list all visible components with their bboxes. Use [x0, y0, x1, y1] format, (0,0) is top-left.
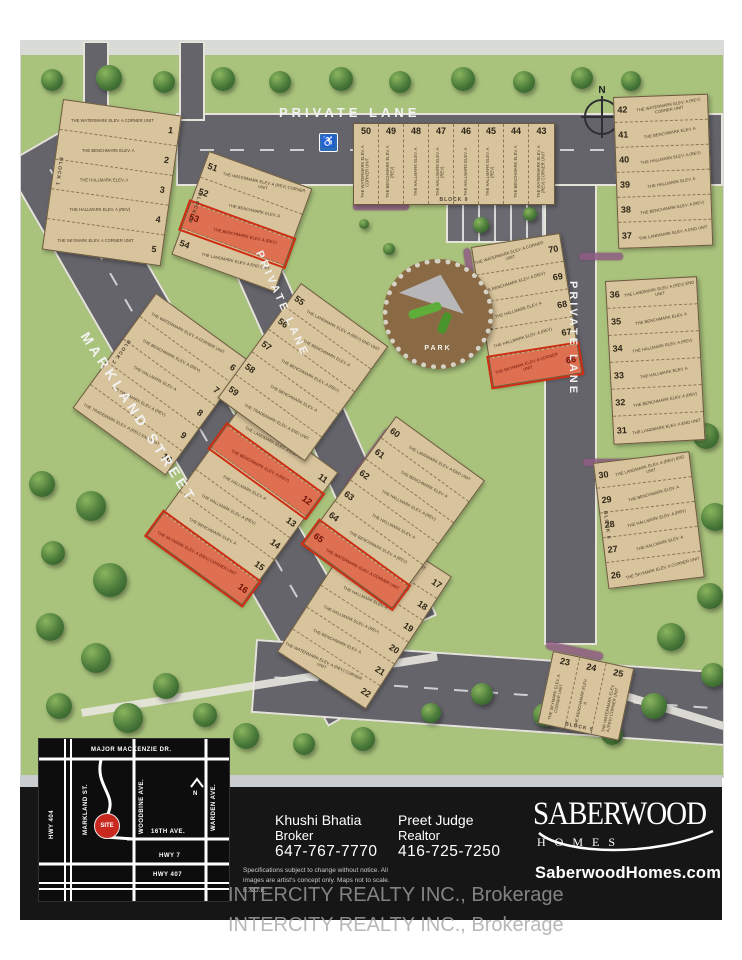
tree [523, 207, 537, 221]
inset-road-16th-ave: 16TH AVE. [151, 829, 185, 835]
lot-model-name: THE SKYMARK ELEV. A CORNER UNIT [492, 352, 564, 382]
playground-slide [407, 301, 442, 320]
lot-number: 11 [314, 470, 333, 487]
lot-number: 60 [386, 423, 405, 440]
tree [513, 71, 535, 93]
location-inset-map: HWY 404 MARKLAND ST. WOODBINE AVE. WARDE… [38, 738, 230, 902]
tree [233, 723, 259, 749]
lot-number: 27 [604, 543, 621, 555]
private-lane-right-label: PRIVATE LANE [567, 281, 579, 396]
lot-model-name: THE BENCHMARK ELEV. A [574, 677, 594, 730]
lot-number: 29 [598, 494, 615, 506]
agent-2-name: Preet Judge [398, 812, 501, 828]
tree [153, 673, 179, 699]
lot-model-name: THE BENCHMARK ELEV. A [514, 142, 519, 202]
compass-north-label: N [598, 85, 605, 96]
lot-number: 5 [145, 243, 162, 255]
tree [41, 69, 63, 91]
watermark-line-1: INTERCITY REALTY INC., Brokerage [228, 884, 564, 907]
agent-2-title: Realtor [398, 828, 501, 843]
inset-road-markland: MARKLAND ST. [83, 784, 89, 835]
lot-model-name: THE HALLMARK ELEV. A [627, 364, 701, 383]
lot-number: 64 [325, 508, 344, 525]
brand-logo: SABERWOOD HOMES SaberwoodHomes.com [533, 798, 719, 883]
lot-model-name: THE WATERMARK ELEV. A (REV) CORNER UNIT [630, 97, 707, 119]
lot-number: 59 [224, 382, 243, 399]
lot-number: 58 [241, 359, 260, 376]
lot-number: 13 [282, 513, 301, 530]
lot-number: 17 [428, 575, 447, 592]
watermark-line-2: INTERCITY REALTY INC., Brokerage [228, 914, 564, 937]
lot-number: 23 [550, 652, 579, 673]
site-plan-map: ♿ N THE WATERMARK ELEV. A CORNER UNIT1TH… [20, 40, 724, 778]
lot-model-name: THE BENCHMARK ELEV. A [631, 124, 708, 142]
tree [451, 67, 475, 91]
inset-road-major-mackenzie: MAJOR MACKENZIE DR. [91, 747, 172, 753]
lot-number: 55 [290, 291, 309, 308]
lot-model-name: THE WATERMARK ELEV. A CORNER UNIT [361, 142, 370, 202]
lot-number: 69 [549, 270, 566, 282]
lot-model-name: THE HALLMARK ELEV. A (REV) [436, 142, 445, 202]
building-block-b8: 42THE WATERMARK ELEV. A (REV) CORNER UNI… [613, 94, 713, 249]
tree [46, 693, 72, 719]
handicap-parking-icon: ♿ [319, 133, 338, 152]
lot-40: 40THE HALLMARK ELEV. A (REV) [616, 145, 710, 173]
lot-39: 39THE HALLMARK ELEV. A [617, 170, 711, 198]
tree [471, 683, 493, 705]
road-stub-center [179, 41, 205, 121]
building-block-b6: 30THE LANDMARK ELEV. A (REV) END UNIT29T… [593, 451, 705, 589]
lot-45: 45THE HALLMARK ELEV. A (REV) [479, 124, 504, 204]
lot-number: 4 [150, 213, 167, 225]
brand-website: SaberwoodHomes.com [535, 864, 719, 883]
road-private-lane-right [544, 153, 597, 645]
tree [153, 71, 175, 93]
tree [621, 71, 641, 91]
lot-number: 15 [250, 557, 269, 574]
building-block-b7: 36THE LANDMARK ELEV. A (REV) END UNIT35T… [605, 276, 705, 445]
flower-hedge [579, 253, 623, 260]
lot-42: 42THE WATERMARK ELEV. A (REV) CORNER UNI… [614, 95, 708, 123]
lot-number: 36 [606, 289, 623, 300]
lot-number: 2 [158, 153, 175, 165]
lot-model-name: THE BENCHMARK ELEV. A (REV) [386, 142, 395, 202]
tree [93, 563, 127, 597]
lot-model-name: THE SKYMARK ELEV. A CORNER UNIT [624, 556, 702, 581]
agent-1-name: Khushi Bhatia [275, 812, 378, 828]
lot-number: 26 [607, 569, 624, 581]
tree [571, 67, 593, 89]
lot-model-name: THE LANDMARK ELEV. A END UNIT [630, 418, 704, 437]
lot-number: 54 [176, 236, 194, 251]
lot-model-name: THE BENCHMARK ELEV. A [57, 149, 159, 154]
lot-number: 14 [266, 535, 285, 552]
lot-model-name: THE WATERMARK ELEV. A CORNER UNIT [61, 119, 163, 124]
lot-number: 21 [371, 662, 390, 679]
building-block-b9: 50THE WATERMARK ELEV. A CORNER UNIT49THE… [353, 123, 555, 205]
agent-1: Khushi Bhatia Broker 647-767-7770 [275, 812, 378, 861]
lot-number: 42 [614, 104, 630, 115]
lot-48: 48THE HALLMARK ELEV. A [404, 124, 429, 204]
lot-number: 48 [404, 124, 428, 140]
lot-model-name: THE WATERMARK ELEV. A (REV) CORNER UNIT [537, 142, 546, 202]
lot-model-name: THE BENCHMARK ELEV. A (REV) [479, 270, 549, 295]
lot-number: 61 [371, 444, 390, 461]
lot-model-name: THE HALLMARK ELEV. A [414, 142, 419, 202]
lot-model-name: THE HALLMARK ELEV. A (REV) [626, 337, 700, 356]
inset-road-hwy407: HWY 407 [153, 872, 182, 878]
lot-number: 39 [617, 179, 633, 190]
agent-2-phone: 416-725-7250 [398, 843, 501, 861]
tree [657, 623, 685, 651]
tree [193, 703, 217, 727]
lot-47: 47THE HALLMARK ELEV. A (REV) [429, 124, 454, 204]
top-gray-strip [21, 41, 723, 55]
lot-number: 25 [603, 663, 633, 684]
lot-43: 43THE WATERMARK ELEV. A (REV) CORNER UNI… [529, 124, 554, 204]
lot-model-name: THE HALLMARK ELEV. A (REV) [49, 208, 151, 213]
tree [351, 727, 375, 751]
tree [113, 703, 143, 733]
lot-number: 70 [545, 242, 562, 254]
lot-model-name: THE HALLMARK ELEV. A [633, 174, 710, 192]
park: PARK [383, 259, 493, 369]
tree [641, 693, 667, 719]
lot-number: 57 [257, 337, 276, 354]
agent-2: Preet Judge Realtor 416-725-7250 [398, 812, 501, 861]
inset-road-hwy7: HWY 7 [159, 853, 180, 859]
lot-model-name: THE SKYMARK ELEV. A CORNER UNIT [547, 672, 567, 725]
tree [269, 71, 291, 93]
lot-model-name: THE HALLMARK ELEV. A [464, 142, 469, 202]
tree [701, 663, 724, 687]
tree [81, 643, 111, 673]
tree [359, 219, 369, 229]
lot-number: 12 [298, 491, 317, 508]
lot-model-name: THE HALLMARK ELEV. A (REV) [486, 142, 495, 202]
lot-number: 65 [309, 529, 328, 546]
lot-model-name: THE LANDMARK ELEV. A END UNIT [635, 225, 712, 243]
lot-number: 49 [379, 124, 403, 140]
lot-38: 38THE BENCHMARK ELEV. A (REV) [618, 195, 712, 223]
lot-number: 63 [340, 487, 359, 504]
lot-number: 1 [162, 124, 179, 136]
tree [96, 65, 122, 91]
lot-number: 47 [429, 124, 453, 140]
building-block-b1: THE WATERMARK ELEV. A CORNER UNIT1THE BE… [42, 99, 182, 266]
block-label: BLOCK 9 [354, 197, 554, 203]
tree [701, 503, 724, 531]
agent-1-phone: 647-767-7770 [275, 843, 378, 861]
lot-number: 37 [619, 230, 635, 241]
brand-sub: HOMES [537, 835, 719, 850]
lot-number: 41 [615, 129, 631, 140]
private-lane-top-label: PRIVATE LANE [279, 105, 420, 120]
lot-number: 19 [399, 618, 418, 635]
lot-number: 9 [174, 426, 193, 443]
tree [421, 703, 441, 723]
tree [383, 243, 395, 255]
lot-number: 44 [504, 124, 528, 140]
lot-number: 8 [191, 404, 210, 421]
lot-model-name: THE BENCHMARK ELEV. A (REV) [634, 199, 711, 217]
brand-name: SABERWOOD [533, 796, 719, 833]
lot-model-name: THE HALLMARK ELEV. A (REV) [488, 326, 558, 351]
lot-41: 41THE BENCHMARK ELEV. A [615, 120, 709, 148]
lot-37: 37THE LANDMARK ELEV. A END UNIT [618, 220, 712, 248]
tree [697, 583, 723, 609]
tree [293, 733, 315, 755]
tree [36, 613, 64, 641]
tree [76, 491, 106, 521]
lot-number: 35 [608, 316, 625, 327]
tree [29, 471, 55, 497]
lot-number: 33 [611, 370, 628, 381]
lot-model-name: THE WATERMARK ELEV. A (REV) CORNER UNIT [601, 683, 621, 736]
lot-model-name: THE BENCHMARK ELEV. A [624, 310, 698, 329]
tree [329, 67, 353, 91]
lot-model-name: THE HALLMARK ELEV. A [53, 179, 155, 184]
tree [211, 67, 235, 91]
lot-31: 31THE LANDMARK ELEV. A END UNIT [613, 412, 704, 444]
lot-model-name: THE HALLMARK ELEV. A [483, 298, 553, 323]
lot-number: 32 [612, 397, 629, 408]
park-label: PARK [388, 345, 488, 352]
lot-number: 24 [577, 658, 606, 679]
lot-number: 3 [154, 183, 171, 195]
inset-north-label: N [193, 791, 198, 797]
lot-model-name: THE SKYMARK ELEV. A CORNER UNIT [45, 239, 147, 244]
inset-map-lines [39, 739, 229, 901]
inset-road-woodbine: WOODBINE AVE. [139, 779, 145, 834]
lot-number: 31 [614, 424, 631, 435]
lot-number: 62 [355, 466, 374, 483]
inset-road-hwy404: HWY 404 [49, 810, 55, 839]
tree [41, 541, 65, 565]
lot-model-name: THE BENCHMARK ELEV. A (REV) [629, 391, 703, 410]
lot-49: 49THE BENCHMARK ELEV. A (REV) [379, 124, 404, 204]
inset-road-warden: WARDEN AVE. [211, 784, 217, 831]
playground-equipment [436, 311, 453, 335]
lot-number: 20 [385, 640, 404, 657]
lot-number: 45 [479, 124, 503, 140]
lot-46: 46THE HALLMARK ELEV. A [454, 124, 479, 204]
lot-50: 50THE WATERMARK ELEV. A CORNER UNIT [354, 124, 379, 204]
site-marker: SITE [94, 813, 120, 839]
lot-number: 18 [413, 596, 432, 613]
lot-number: 34 [609, 343, 626, 354]
lot-number: 16 [234, 579, 253, 596]
lot-model-name: THE LANDMARK ELEV. A (REV) END UNIT [622, 281, 696, 304]
tree [473, 217, 489, 233]
lot-number: 40 [616, 154, 632, 165]
lot-44: 44THE BENCHMARK ELEV. A [504, 124, 529, 204]
agent-1-title: Broker [275, 828, 378, 843]
lot-number: 30 [595, 469, 612, 481]
lot-number: 50 [354, 124, 378, 140]
tree [389, 71, 411, 93]
lot-number: 43 [529, 124, 554, 140]
lot-model-name: THE HALLMARK ELEV. A (REV) [632, 149, 709, 167]
lot-number: 46 [454, 124, 478, 140]
lot-number: 38 [618, 204, 634, 215]
